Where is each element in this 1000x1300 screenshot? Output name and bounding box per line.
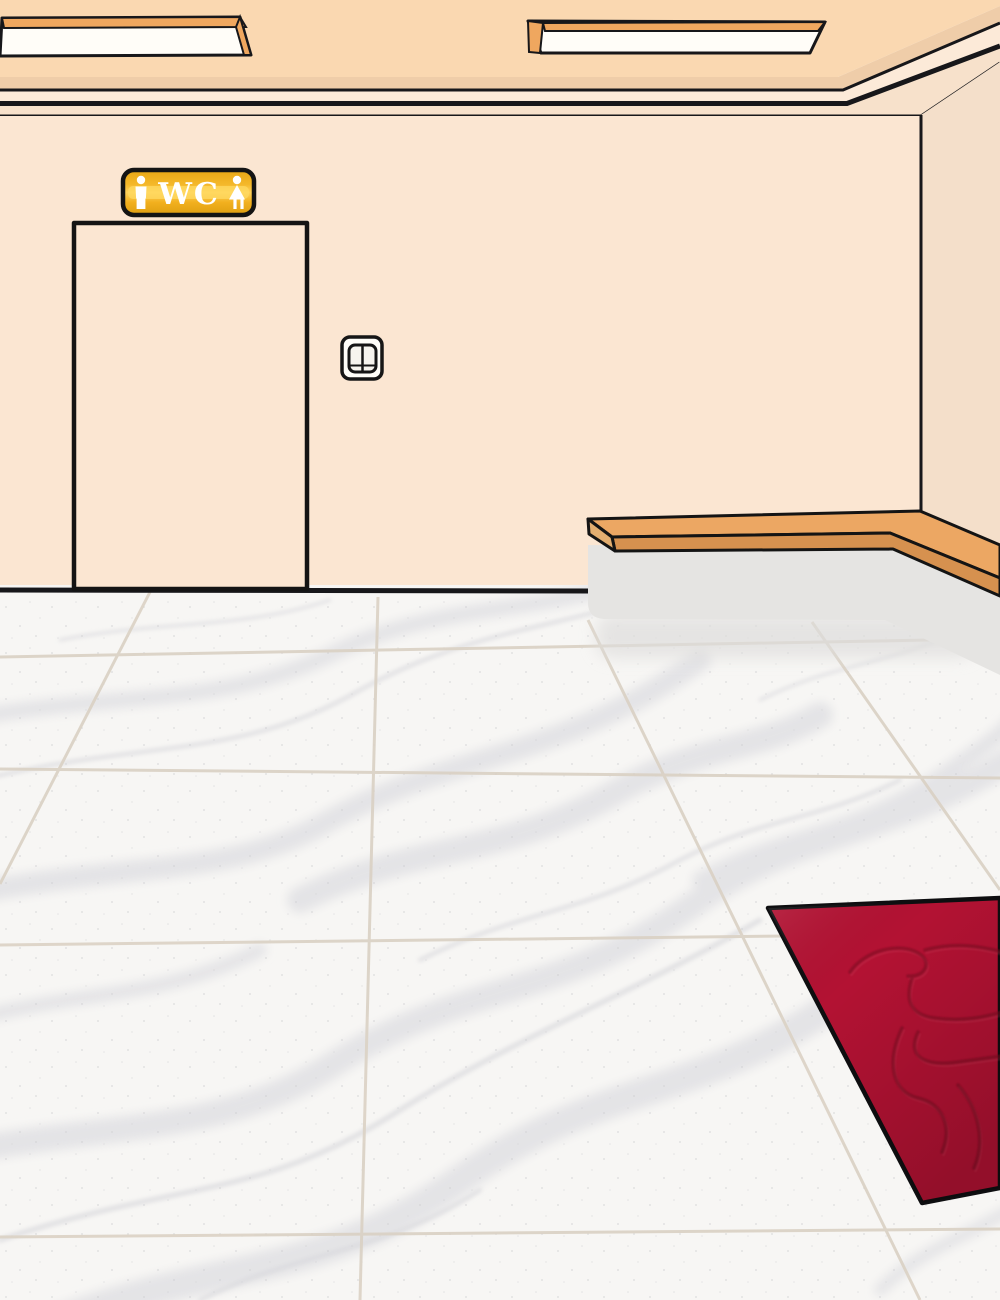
hallway-scene: WC [0,0,1000,1300]
lamp-top-trim [543,22,825,31]
ceiling-light-left [0,17,251,56]
light-switch[interactable] [342,337,382,379]
ceiling-light-right [528,21,825,53]
lamp-end-trim [528,21,543,53]
lamp-top-trim [2,17,246,28]
toilet-door[interactable] [74,223,307,589]
man-icon [136,176,147,209]
wc-sign-label: WC [157,177,220,212]
wc-sign: WC [123,170,254,215]
scene-illustration: WC [0,0,1000,1300]
